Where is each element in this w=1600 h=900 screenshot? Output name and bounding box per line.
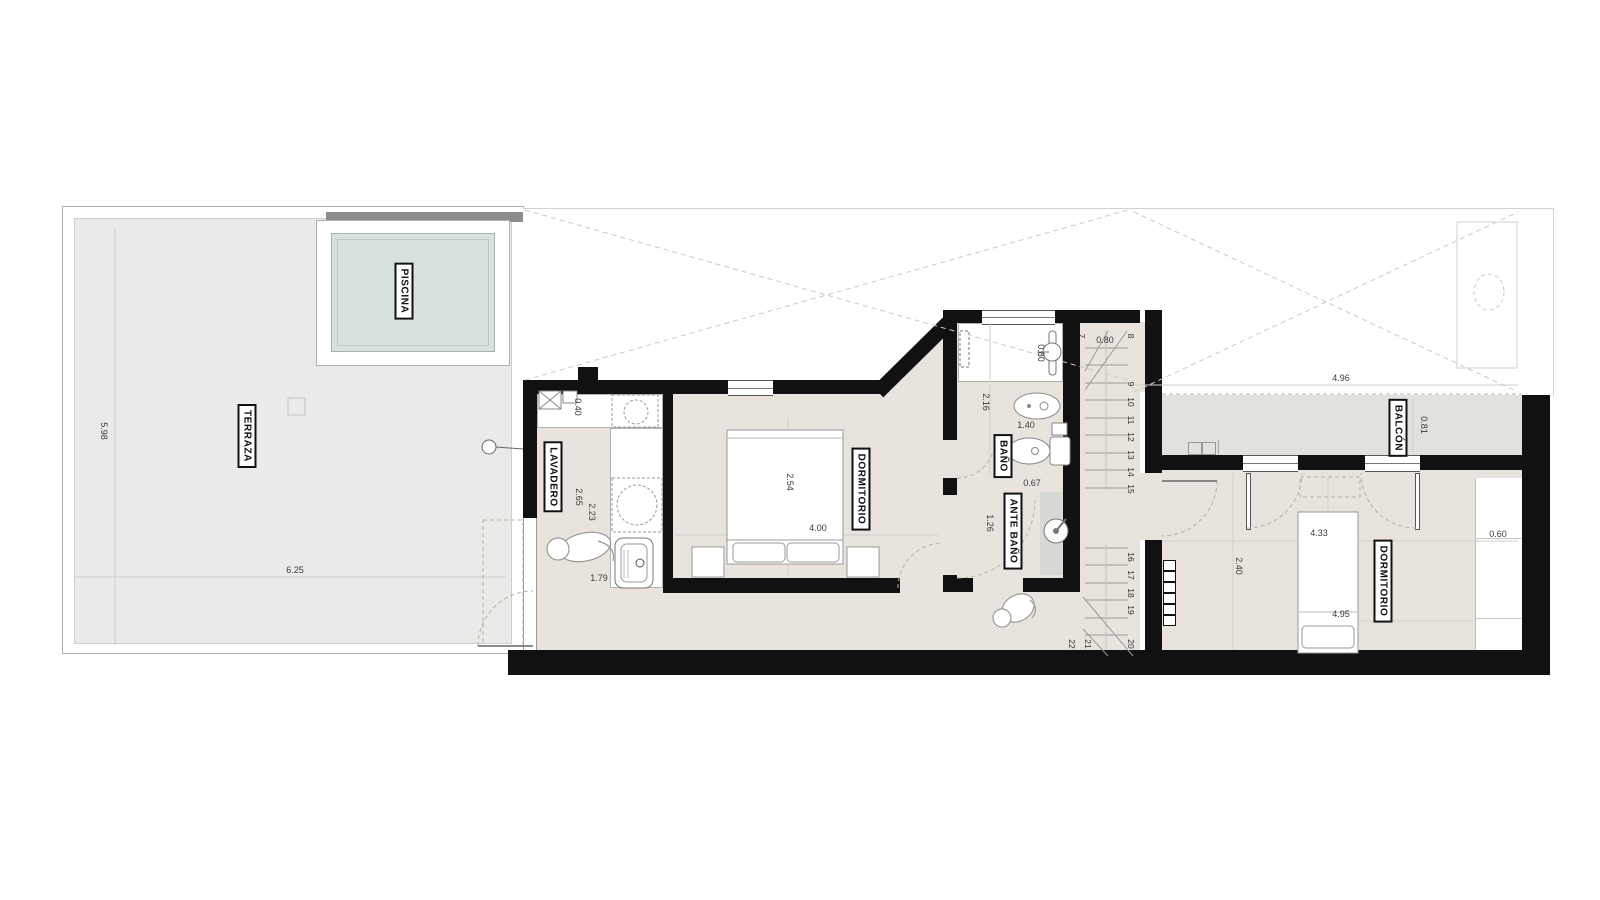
- stair-step-10: 10: [1126, 397, 1136, 406]
- wall-balcony-c: [1420, 455, 1522, 470]
- dim-dorm2-l: 4.95: [1332, 609, 1350, 619]
- wall-column-tab: [578, 367, 598, 381]
- wall-stair-right-top: [1145, 310, 1162, 473]
- stair-step-13: 13: [1126, 450, 1136, 459]
- stair-step-12: 12: [1126, 432, 1136, 441]
- stair-step-17: 17: [1126, 570, 1136, 579]
- stair-step-19: 19: [1126, 605, 1136, 614]
- dim-dorm2-d1: 2.40: [1234, 557, 1244, 575]
- stair-step-20: 20: [1126, 639, 1136, 648]
- wall-bath-right: [1063, 310, 1080, 592]
- dim-lav-d1: 2.65: [574, 488, 584, 506]
- window-balcony-left: [1243, 455, 1298, 472]
- stair-step-14: 14: [1126, 467, 1136, 476]
- window-balcony-right: [1365, 455, 1420, 472]
- balcony-box: [1188, 442, 1202, 455]
- room-label-bano: BAÑO: [994, 434, 1013, 478]
- room-label-balcon: BALCÓN: [1389, 399, 1408, 457]
- balcony-divider-line: [1218, 440, 1219, 455]
- stair-step-18: 18: [1126, 588, 1136, 597]
- kitchen-counter-column: [610, 428, 663, 588]
- dim-dorm2-bed: 4.33: [1310, 528, 1328, 538]
- dim-stair-w: 0.80: [1096, 335, 1114, 345]
- window-leaf-right: [1415, 473, 1420, 530]
- dim-dorm1-l: 4.00: [809, 523, 827, 533]
- dim-lav-d2: 2.23: [587, 503, 597, 521]
- room-label-lavadero: LAVADERO: [544, 441, 563, 512]
- stair-step-15: 15: [1126, 484, 1136, 493]
- stair-step-11: 11: [1126, 416, 1136, 425]
- void-right: [1130, 208, 1554, 396]
- wall-bottom: [508, 650, 1550, 675]
- room-label-piscina: PISCINA: [395, 263, 414, 320]
- wall-laundry-left: [523, 380, 537, 518]
- bedroom2-floor: [1162, 470, 1522, 658]
- radiator: [1163, 560, 1176, 626]
- wall-bath-left-b: [943, 478, 957, 495]
- closet-shelf-line: [1475, 618, 1522, 619]
- dim-ante-d1: 0.67: [1023, 478, 1041, 488]
- sliding-door-track: [523, 518, 537, 650]
- room-label-ante-bano: ANTE BAÑO: [1004, 493, 1023, 570]
- dim-closet-w: 0.60: [1489, 529, 1507, 539]
- stair-step-21: 21: [1083, 639, 1093, 648]
- stair-step-9: 9: [1126, 382, 1136, 387]
- wall-top-b: [773, 380, 883, 394]
- dim-bano-d2: 1.40: [1017, 420, 1035, 430]
- stair-step-8: 8: [1126, 334, 1136, 339]
- wall-laundry-bedroom-divider: [663, 388, 673, 593]
- bath-vanity: [958, 323, 1063, 382]
- room-label-dormitorio-1: DORMITORIO: [852, 448, 871, 531]
- wall-right: [1522, 395, 1550, 675]
- room-label-dormitorio-2: DORMITORIO: [1374, 540, 1393, 623]
- wall-balcony-a: [1162, 455, 1243, 470]
- wall-balcony-b: [1298, 455, 1365, 470]
- room-label-terraza: TERRAZA: [238, 404, 257, 468]
- dim-lav-counter: 0.40: [573, 398, 583, 416]
- floor-plan: PISCINA TERRAZA LAVADERO DORMITORIO BAÑO…: [0, 0, 1600, 900]
- window-bath: [982, 310, 1055, 325]
- window-leaf-left: [1246, 473, 1251, 530]
- dim-balcon-l: 4.96: [1332, 373, 1350, 383]
- wall-bath-left-a: [943, 322, 957, 440]
- hall-floor: [1140, 473, 1162, 540]
- dim-bano-vanity: 0.80: [1036, 344, 1046, 362]
- kitchen-counter-top: [537, 394, 663, 428]
- window-bedroom1: [728, 380, 773, 396]
- balcony-floor: [1162, 395, 1522, 455]
- stair-step-16: 16: [1126, 552, 1136, 561]
- stair-step-7: 7: [1077, 334, 1087, 339]
- wall-ante-bottom-left: [943, 578, 973, 592]
- dim-terraza-h: 5.98: [99, 422, 109, 440]
- closet: [1475, 478, 1523, 653]
- balcony-box: [1202, 442, 1216, 455]
- dim-bano-d1: 2.16: [981, 393, 991, 411]
- dim-dorm1-w: 2.54: [785, 473, 795, 491]
- wall-stair-right-bottom: [1145, 540, 1162, 658]
- dim-balcon-w: 0.81: [1419, 416, 1429, 434]
- dim-terraza-w: 6.25: [286, 565, 304, 575]
- stair-step-22: 22: [1067, 639, 1077, 648]
- wall-bedroom1-bottom: [672, 578, 900, 593]
- dim-ante-d2: 1.26: [985, 514, 995, 532]
- wall-top-a: [523, 380, 728, 394]
- dim-lav-w: 1.79: [590, 573, 608, 583]
